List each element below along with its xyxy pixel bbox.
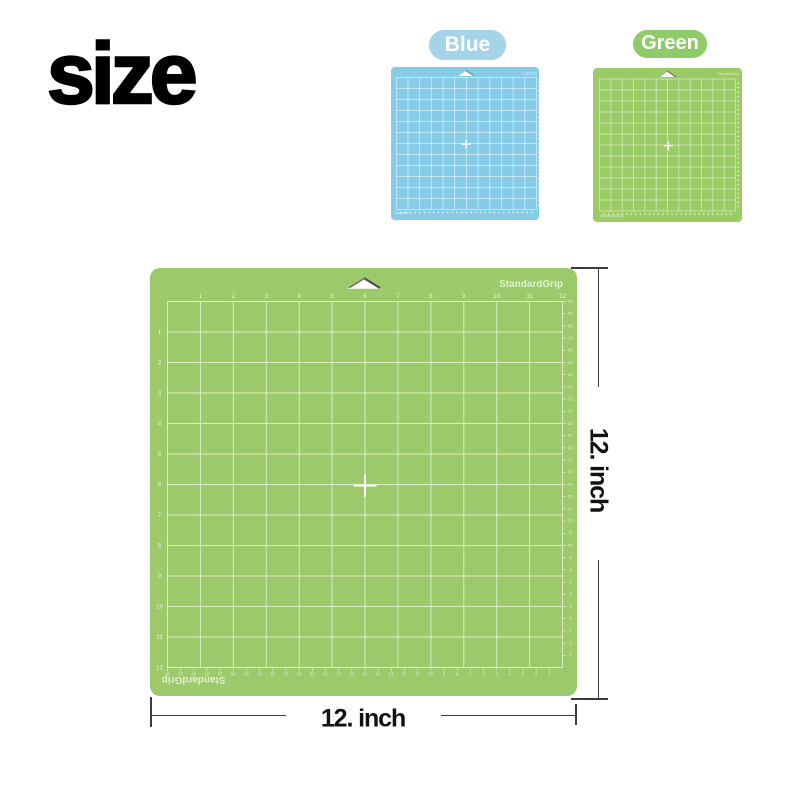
svg-text:18: 18	[568, 445, 573, 450]
svg-text:13: 13	[388, 671, 393, 676]
svg-text:StandardGrip: StandardGrip	[718, 72, 739, 76]
svg-text:6: 6	[363, 293, 367, 300]
svg-text:17: 17	[568, 458, 573, 463]
svg-text:24: 24	[568, 372, 573, 377]
svg-text:3: 3	[265, 293, 269, 300]
svg-text:12: 12	[559, 293, 566, 300]
svg-text:4: 4	[158, 421, 162, 428]
svg-text:25: 25	[230, 671, 235, 676]
svg-text:28: 28	[568, 323, 573, 328]
svg-text:16: 16	[568, 470, 573, 475]
svg-text:5: 5	[158, 451, 162, 458]
svg-text:29: 29	[568, 311, 573, 316]
svg-text:15: 15	[568, 482, 573, 487]
svg-text:12: 12	[568, 519, 573, 524]
svg-text:14: 14	[375, 671, 380, 676]
svg-text:15: 15	[362, 671, 367, 676]
svg-text:20: 20	[568, 421, 573, 426]
svg-text:12: 12	[402, 671, 407, 676]
svg-text:7: 7	[396, 293, 400, 300]
svg-text:6: 6	[158, 482, 162, 489]
svg-text:25: 25	[568, 360, 573, 365]
svg-text:14: 14	[568, 494, 573, 499]
svg-text:19: 19	[568, 433, 573, 438]
svg-text:StandardGrip: StandardGrip	[499, 279, 563, 290]
svg-text:7: 7	[158, 512, 162, 519]
svg-text:9: 9	[462, 293, 466, 300]
svg-text:StandardGrip: StandardGrip	[162, 674, 226, 685]
svg-text:5: 5	[330, 293, 334, 300]
svg-text:19: 19	[309, 671, 314, 676]
svg-text:3: 3	[158, 390, 162, 397]
svg-text:26: 26	[568, 348, 573, 353]
svg-text:21: 21	[283, 671, 288, 676]
svg-text:21: 21	[568, 409, 573, 414]
svg-text:11: 11	[156, 634, 163, 641]
svg-text:StandardGrip: StandardGrip	[599, 214, 624, 219]
svg-text:27: 27	[568, 336, 573, 341]
svg-text:2: 2	[158, 360, 162, 367]
svg-text:11: 11	[526, 293, 533, 300]
svg-text:24: 24	[244, 671, 249, 676]
svg-text:10: 10	[493, 293, 500, 300]
svg-text:10: 10	[568, 543, 573, 548]
svg-text:8: 8	[158, 543, 162, 550]
svg-text:11: 11	[568, 531, 573, 536]
svg-text:10: 10	[156, 604, 163, 611]
svg-text:22: 22	[568, 397, 573, 402]
svg-text:1: 1	[199, 293, 203, 300]
svg-text:11: 11	[415, 671, 420, 676]
svg-text:12: 12	[156, 665, 163, 672]
svg-text:2: 2	[232, 293, 236, 300]
svg-text:8: 8	[429, 293, 433, 300]
svg-text:13: 13	[568, 506, 573, 511]
svg-text:9: 9	[158, 573, 162, 580]
svg-text:LightGrip: LightGrip	[394, 211, 411, 216]
svg-text:23: 23	[257, 671, 262, 676]
svg-text:1: 1	[158, 329, 162, 336]
svg-text:23: 23	[568, 384, 573, 389]
svg-text:30: 30	[568, 299, 573, 304]
svg-text:22: 22	[270, 671, 275, 676]
svg-text:18: 18	[323, 671, 328, 676]
svg-text:10: 10	[428, 671, 433, 676]
svg-text:LightGrip: LightGrip	[522, 72, 537, 76]
svg-text:20: 20	[296, 671, 301, 676]
svg-text:16: 16	[349, 671, 354, 676]
svg-text:17: 17	[336, 671, 341, 676]
svg-text:4: 4	[297, 293, 301, 300]
